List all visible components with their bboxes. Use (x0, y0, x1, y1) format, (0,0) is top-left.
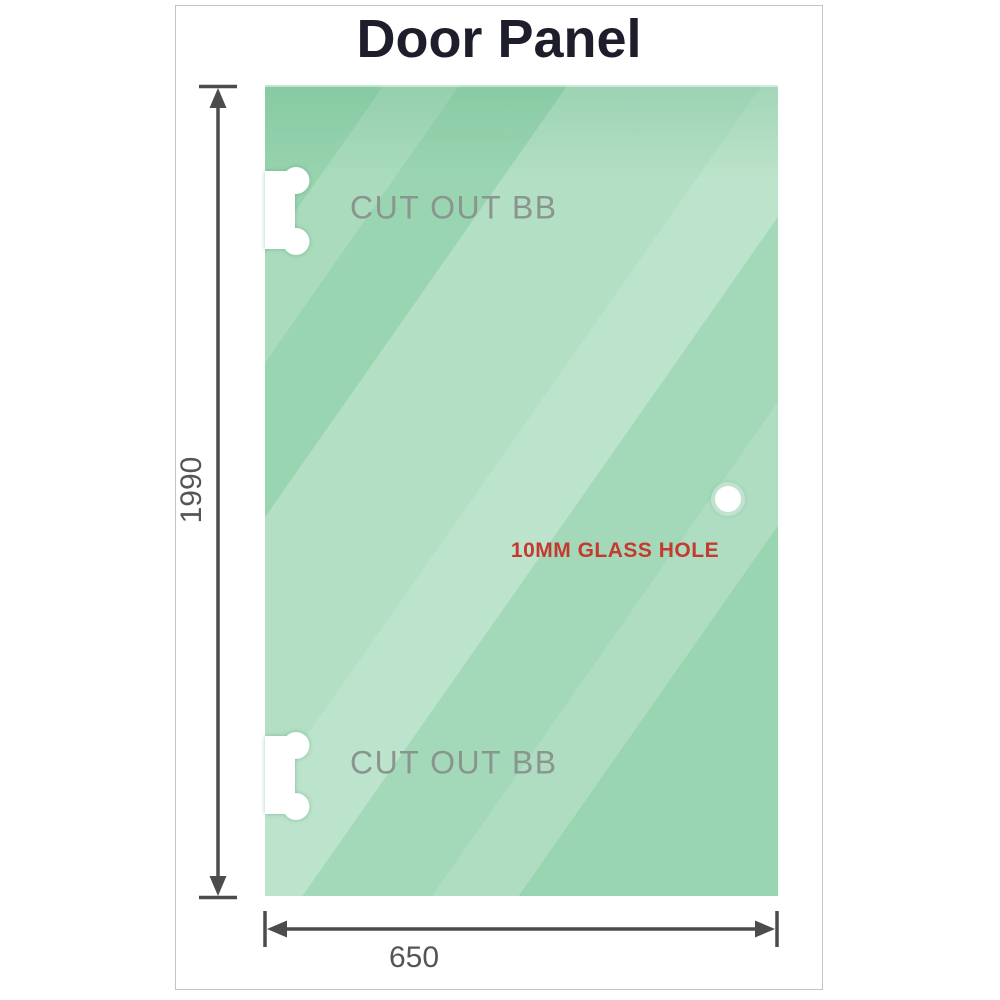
glass-hole-label: 10MM GLASS HOLE (511, 539, 719, 563)
cutout-bottom-label: CUT OUT BB (350, 745, 558, 782)
cutout-shape (265, 167, 310, 255)
hinge-cutout-top (265, 166, 311, 256)
diagram-title: Door Panel (175, 10, 823, 70)
cutout-top-label: CUT OUT BB (350, 190, 558, 227)
width-dimension-label: 650 (389, 941, 439, 975)
hinge-cutout-bottom (265, 731, 311, 821)
height-dimension-label: 1990 (175, 457, 209, 524)
glass-hole (715, 486, 741, 512)
cutout-shape (265, 732, 310, 820)
